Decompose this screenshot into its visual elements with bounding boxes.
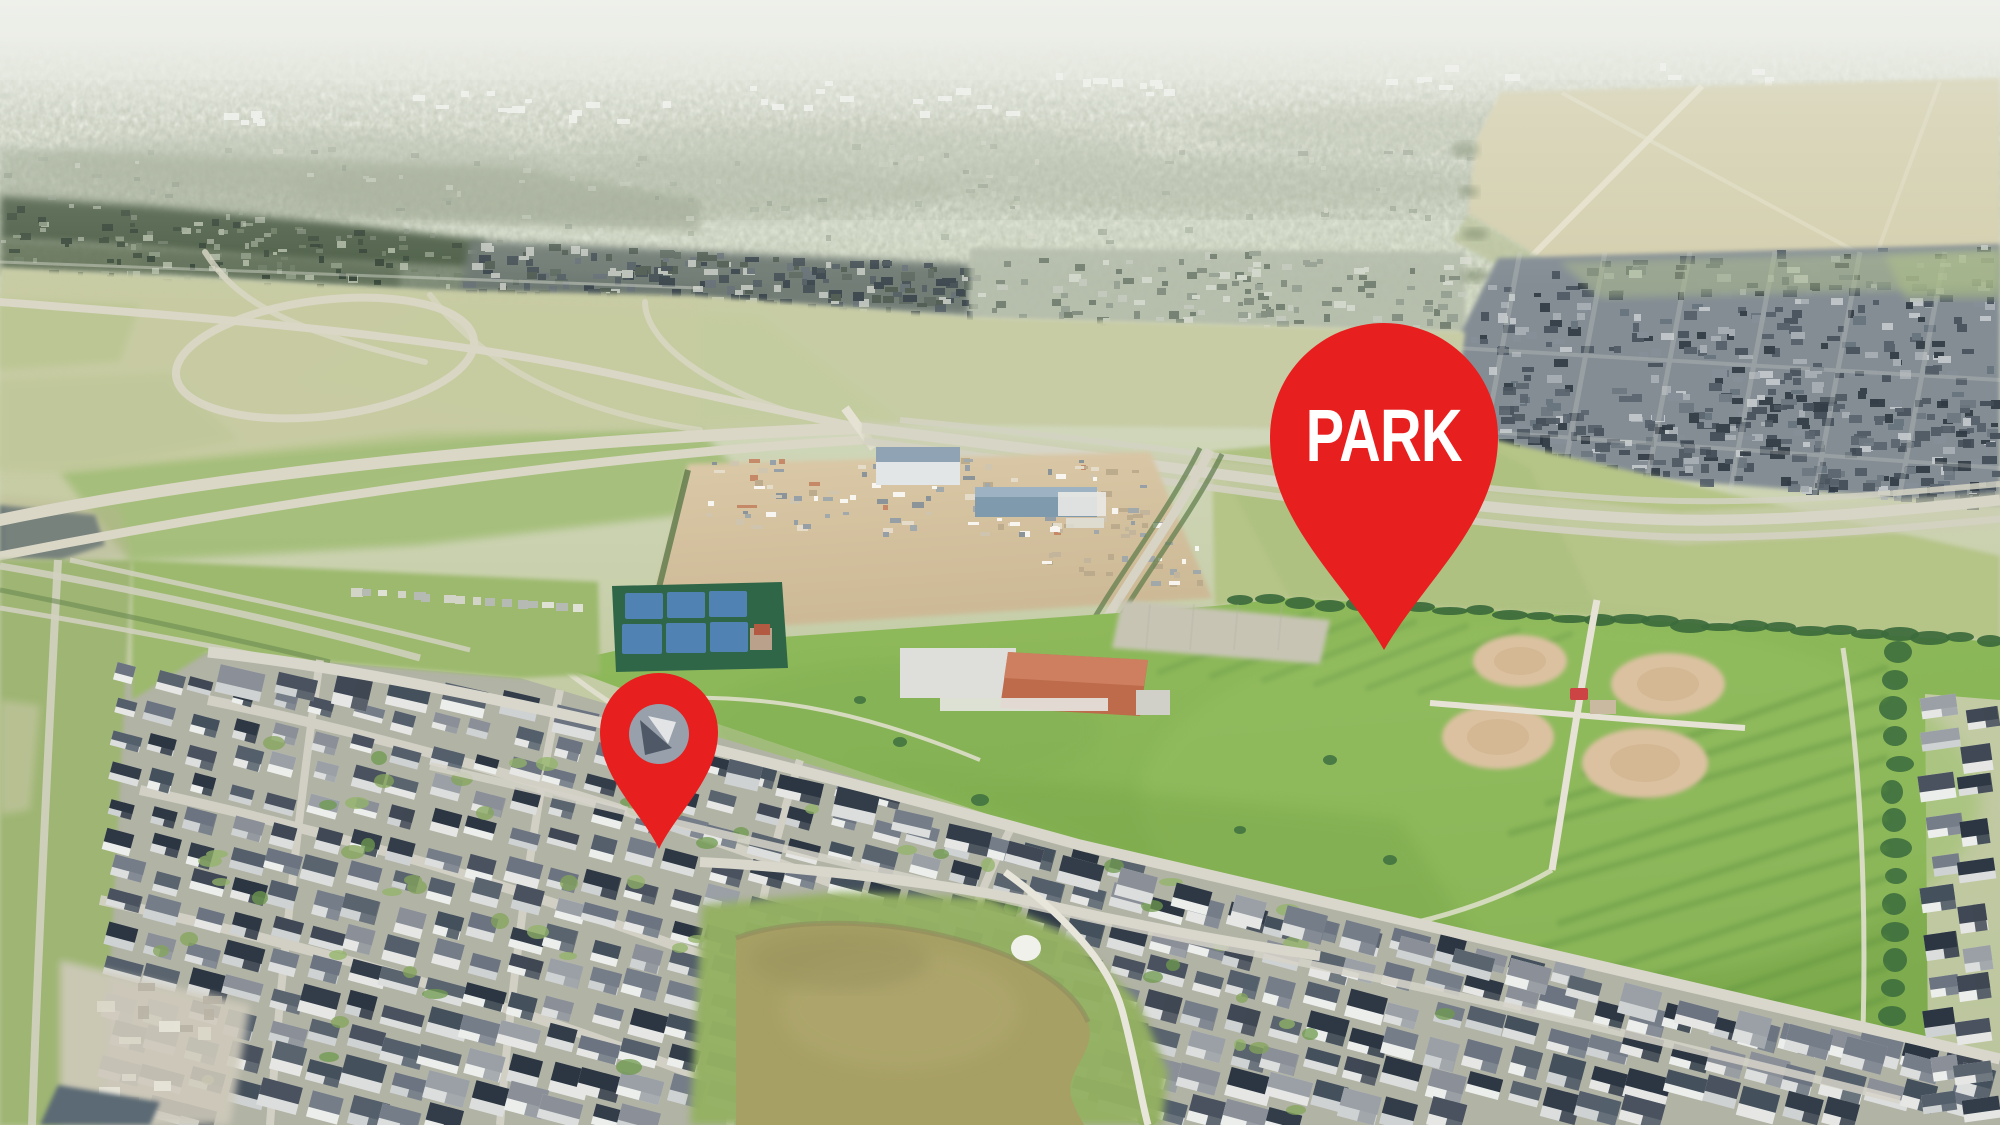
svg-text:PARK: PARK bbox=[1306, 395, 1463, 478]
